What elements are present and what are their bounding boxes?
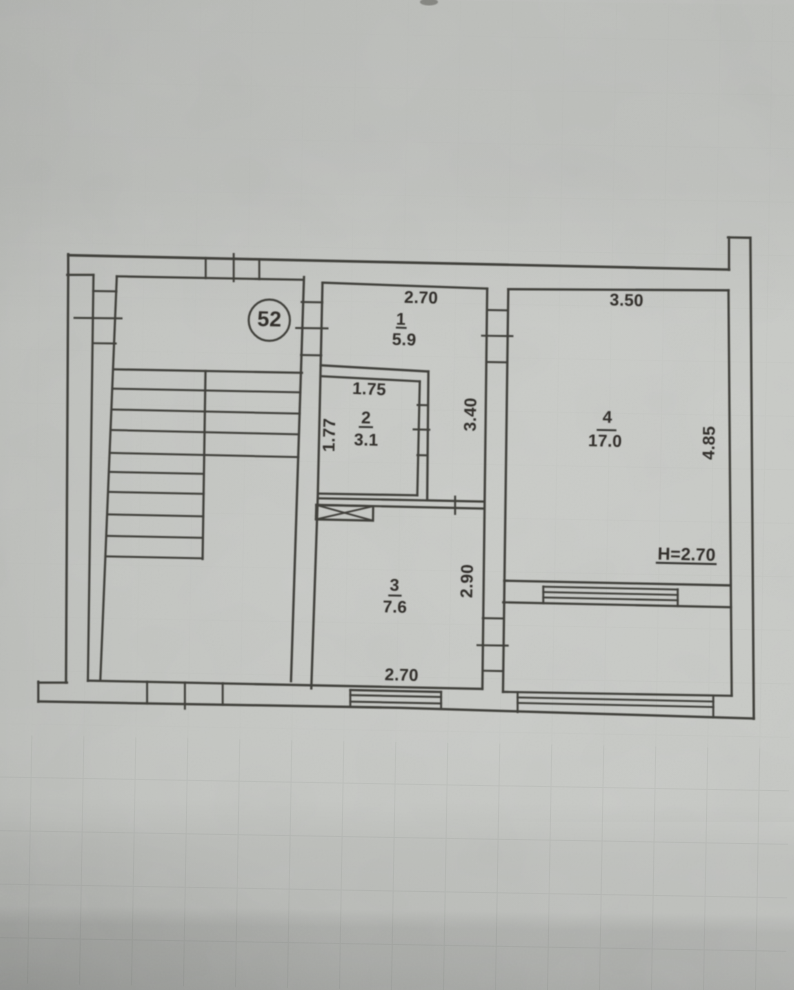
svg-text:7.6: 7.6 xyxy=(383,597,408,617)
svg-text:52: 52 xyxy=(257,307,282,332)
svg-text:2.90: 2.90 xyxy=(457,564,477,598)
svg-text:2: 2 xyxy=(361,408,371,427)
svg-text:4: 4 xyxy=(602,408,612,427)
svg-text:3.40: 3.40 xyxy=(461,397,481,431)
svg-text:3.1: 3.1 xyxy=(354,430,379,450)
svg-text:17.0: 17.0 xyxy=(588,431,622,451)
svg-text:2.70: 2.70 xyxy=(384,665,418,685)
svg-text:4.85: 4.85 xyxy=(699,426,719,460)
svg-text:5.9: 5.9 xyxy=(392,330,417,350)
svg-text:2.70: 2.70 xyxy=(404,288,438,308)
svg-text:H=2.70: H=2.70 xyxy=(657,543,716,564)
svg-text:3: 3 xyxy=(390,576,400,595)
svg-text:1: 1 xyxy=(396,310,406,329)
svg-text:3.50: 3.50 xyxy=(609,290,643,310)
svg-text:1.75: 1.75 xyxy=(352,379,387,400)
svg-text:1.77: 1.77 xyxy=(319,418,339,452)
